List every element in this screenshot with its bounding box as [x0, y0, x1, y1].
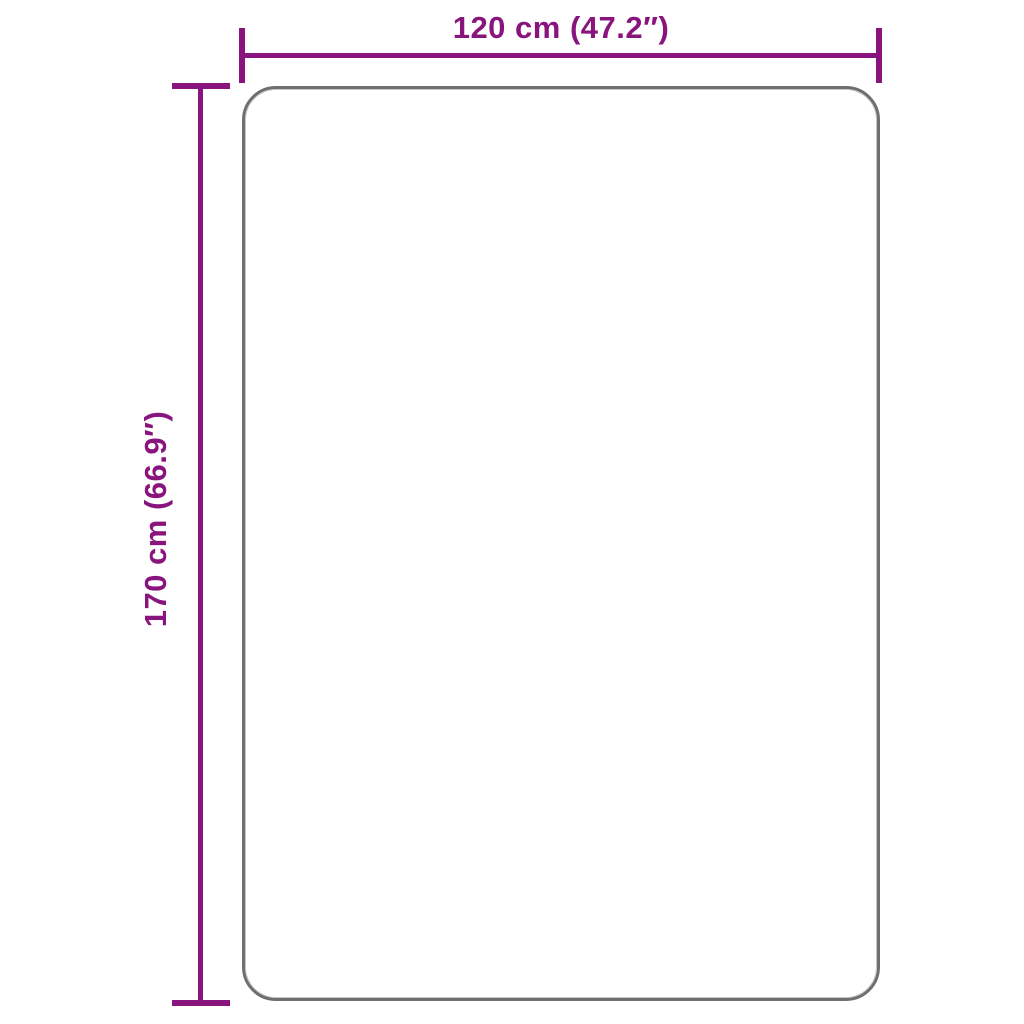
height-dimension-cap-top [172, 83, 230, 89]
width-dimension-line [242, 53, 880, 58]
width-dimension-label: 120 cm (47.2″) [242, 10, 880, 46]
height-dimension-cap-bottom [172, 1000, 230, 1006]
height-dimension-label: 170 cm (66.9″) [138, 411, 174, 628]
product-dimension-diagram: 120 cm (47.2″) 170 cm (66.9″) [0, 0, 1024, 1024]
rug-outline [242, 86, 880, 1001]
height-dimension-line [198, 86, 203, 1003]
